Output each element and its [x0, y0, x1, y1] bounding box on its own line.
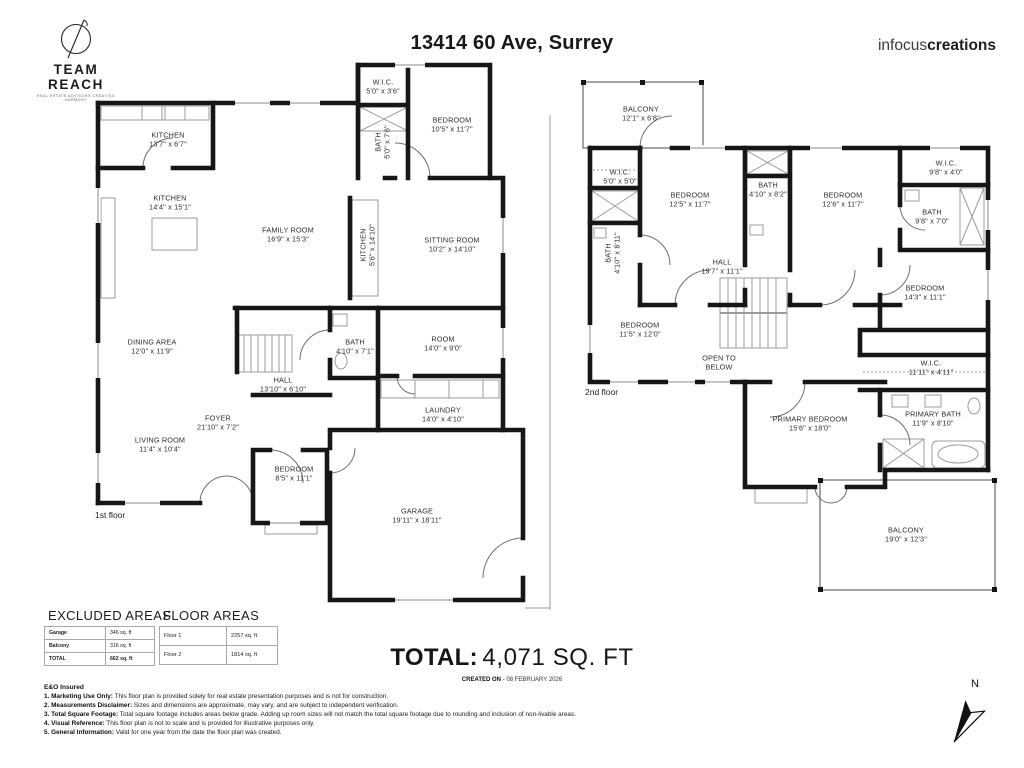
open-to-below-label: OPEN TO BELOW	[693, 354, 745, 373]
room-garage: GARAGE19'11" x 18'11"	[392, 507, 441, 526]
room-wic: W.I.C.5'0" x 3'6"	[366, 78, 400, 97]
room-laundry: LAUNDRY14'0" x 4'10"	[422, 406, 464, 425]
floor-plan-2nd: BALCONY12'1" x 6'8" W.I.C.5'0" x 5'0" BE…	[580, 75, 1015, 600]
room-balcony-bottom: BALCONY19'0" x 12'3"	[885, 526, 927, 545]
room-wic-2: W.I.C.9'8" x 4'0"	[929, 159, 963, 178]
room-primary-bedroom: PRIMARY BEDROOM15'6" x 18'0"	[773, 415, 848, 434]
room-living-room: LIVING ROOM11'4" x 10'4"	[135, 436, 185, 455]
room-bath-2: BATH4'10" x 7'1"	[336, 338, 374, 357]
fixtures-floor1	[101, 106, 550, 610]
table-row: Floor 12257 sq. ft	[160, 627, 278, 646]
floor-1-tag: 1st floor	[95, 510, 125, 520]
table-row: Garage346 sq. ft	[45, 627, 155, 640]
floor-plan-page: TEAM REACH REAL ESTATE ADVISORS CREATING…	[0, 0, 1024, 768]
floor-plan-1st: KITCHEN13'7" x 6'7" W.I.C.5'0" x 3'6" BA…	[85, 58, 555, 618]
room-kitchen-main: KITCHEN14'4" x 15'1"	[149, 194, 191, 213]
room-wic-1: W.I.C.5'0" x 5'0"	[603, 168, 637, 187]
room-bedroom: BEDROOM10'5" x 11'7"	[431, 116, 472, 135]
disclaimer-item: 2. Measurements Disclaimer: Sizes and di…	[44, 701, 644, 710]
room-primary-bath: PRIMARY BATH11'9" x 8'10"	[905, 410, 961, 429]
stairs-icon	[237, 335, 292, 372]
room-bedroom-4: BEDROOM14'3" x 11'1"	[904, 284, 945, 303]
page-title: 13414 60 Ave, Surrey	[0, 32, 1024, 55]
disclaimer-item: 1. Marketing Use Only: This floor plan i…	[44, 692, 644, 701]
disclaimers: E&O Insured 1. Marketing Use Only: This …	[44, 684, 644, 737]
room-balcony-top: BALCONY12'1" x 6'8"	[622, 105, 660, 124]
door-arcs-floor1	[143, 138, 523, 578]
room-bedroom-2: BEDROOM12'6" x 11'7"	[822, 191, 863, 210]
room-room: ROOM14'0" x 9'0"	[424, 335, 462, 354]
room-hall: HALL13'10" x 6'10"	[260, 376, 306, 395]
room-bedroom-1: BEDROOM12'5" x 11'7"	[669, 191, 710, 210]
brand-bold: creations	[927, 37, 996, 54]
total-label: TOTAL:	[390, 644, 478, 671]
floor-2-tag: 2nd floor	[585, 387, 618, 397]
room-dining-area: DINING AREA12'0" x 11'9"	[128, 338, 177, 357]
excluded-areas-title: EXCLUDED AREAS	[48, 608, 171, 623]
room-sitting-room: SITTING ROOM10'2" x 14'10"	[424, 236, 479, 255]
room-foyer: FOYER21'10" x 7'2"	[197, 414, 239, 433]
infocus-creations-brand: infocuscreations	[878, 37, 996, 55]
compass: N	[933, 664, 1009, 754]
room-bedroom-2: BEDROOM8'5" x 11'1"	[275, 465, 314, 484]
disclaimer-heading: E&O Insured	[44, 684, 644, 691]
room-bath-mid: BATH4'10" x 8'2"	[749, 181, 787, 200]
walls-floor2	[590, 148, 988, 487]
disclaimer-item: 5. General Information: Valid for one ye…	[44, 728, 644, 737]
room-wic-3: W.I.C.11'11" x 4'11"	[909, 359, 954, 378]
room-bedroom-3: BEDROOM11'5" x 12'0"	[619, 321, 660, 340]
brand-light: infocus	[878, 37, 927, 54]
room-hall: HALL19'7" x 11'1"	[701, 258, 742, 277]
disclaimer-item: 4. Visual Reference: This floor plan is …	[44, 719, 644, 728]
room-bath-right: BATH9'8" x 7'0"	[915, 208, 949, 227]
compass-north-label: N	[971, 678, 979, 690]
room-kitchen-spice: KITCHEN13'7" x 6'7"	[149, 131, 187, 150]
room-bath: BATH5'0" x 7'6"	[374, 125, 393, 159]
room-bath-left: BATH4'10" x 8'11"	[604, 232, 623, 273]
floor-areas-title: FLOOR AREAS	[163, 608, 259, 623]
room-kitchen-butler: KITCHEN5'6" x 14'10"	[359, 224, 378, 266]
stairs-icon	[720, 278, 787, 348]
created-on: CREATED ON - 08 FEBRUARY 2026	[0, 677, 1024, 683]
total-area: TOTAL: 4,071 SQ. FT	[0, 644, 1024, 672]
disclaimer-item: 3. Total Square Footage: Total square fo…	[44, 710, 644, 719]
total-value: 4,071 SQ. FT	[482, 644, 633, 671]
room-family-room: FAMILY ROOM16'9" x 15'3"	[262, 226, 314, 245]
